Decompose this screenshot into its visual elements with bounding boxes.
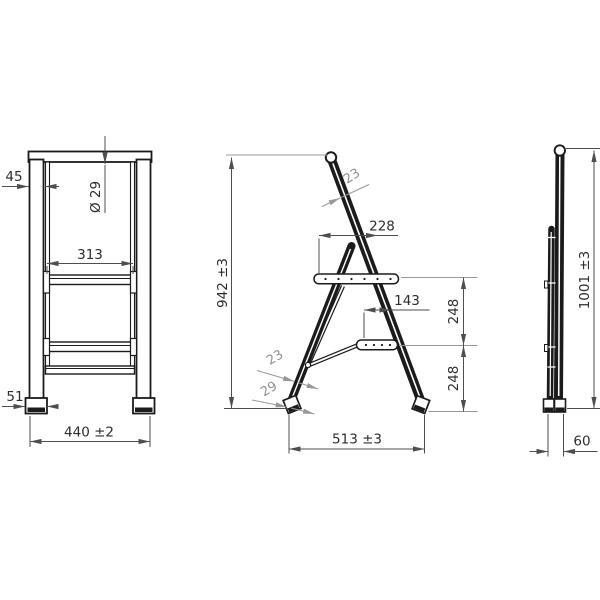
dim-text-folded-depth: 60 — [573, 434, 590, 450]
side-platform — [314, 274, 399, 284]
dim-text-platform-depth: 228 — [369, 219, 395, 235]
front-step-1 — [47, 275, 133, 285]
dim-text-folded-height: 1001 ±3 — [577, 251, 593, 310]
side-hinge-circle — [326, 152, 336, 162]
side-brace-pivot — [305, 362, 310, 367]
folded-step-edge-lower — [545, 345, 548, 352]
front-bottom-bar — [46, 366, 135, 374]
front-step-1-bracket-left — [44, 272, 50, 294]
front-right-leg — [137, 160, 151, 399]
side-mid-step — [357, 340, 398, 350]
front-step-2-bracket-right — [131, 339, 137, 356]
dim-text-side-height: 942 ±3 — [215, 258, 231, 308]
folded-front-foot-pad — [556, 408, 565, 412]
folded-hinge-circle — [555, 145, 565, 155]
front-top-bar — [29, 152, 152, 163]
drawing-canvas: 45 Ø 29 313 51 440 ±2 — [0, 0, 600, 600]
background — [0, 0, 600, 600]
front-step-2-bracket-left — [44, 339, 50, 356]
dim-text-leg-width: 45 — [5, 169, 22, 185]
folded-step-edge-upper — [545, 281, 548, 288]
dim-text-spacing-lower: 248 — [446, 366, 462, 392]
front-left-leg — [30, 160, 44, 399]
front-step-2 — [47, 342, 133, 352]
folded-rear-foot-pad — [545, 408, 554, 412]
front-left-foot-pad — [28, 408, 46, 413]
front-step-1-bracket-right — [131, 272, 137, 294]
step-stool-dimension-drawing: 45 Ø 29 313 51 440 ±2 — [0, 0, 600, 600]
front-right-foot-pad — [135, 408, 153, 413]
dim-text-foot-width: 51 — [6, 389, 23, 405]
dim-text-tube-dia: Ø 29 — [88, 181, 104, 213]
dim-text-overall-width: 440 ±2 — [64, 425, 114, 441]
dim-text-spacing-upper: 248 — [446, 299, 462, 325]
dim-text-step-width: 313 — [77, 247, 103, 263]
dim-text-step-depth: 143 — [394, 293, 420, 309]
dim-text-footprint: 513 ±3 — [332, 432, 382, 448]
